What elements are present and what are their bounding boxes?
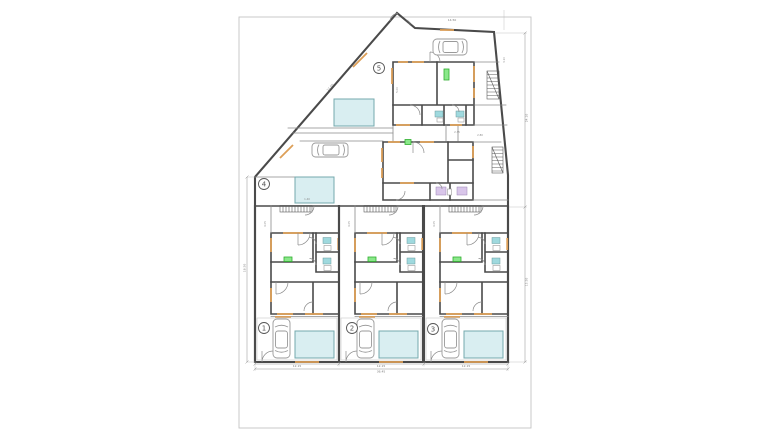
pool-unit5	[334, 99, 374, 126]
dim-extra: 5.00	[395, 87, 399, 93]
dim-unit1-width: 12.15	[293, 364, 302, 368]
green-door-marker	[444, 69, 449, 80]
dim-right-lower: 15.50	[525, 278, 529, 287]
floor-plan-drawing: 1 2 3 4 5 12.15 12.15 12.15 36.45 24.10 …	[0, 0, 770, 433]
unit-5-label: 5	[377, 65, 381, 73]
dim-extra: 4.05	[347, 221, 351, 227]
unit-2-label: 2	[350, 325, 354, 333]
dim-extra: 4.05	[432, 221, 436, 227]
unit-5-badge: 5	[374, 63, 385, 74]
dim-extra: 1.40	[304, 197, 310, 201]
unit-4-plan	[255, 125, 508, 203]
dim-extra: 3.10	[502, 57, 506, 63]
unit-2-badge: 2	[347, 323, 358, 334]
car-unit5	[433, 39, 467, 55]
dim-extra: 2.35	[454, 130, 460, 134]
unit-4-badge: 4	[259, 179, 270, 190]
unit-1-badge: 1	[259, 323, 270, 334]
unit-4-label: 4	[262, 181, 267, 189]
dim-total-width: 36.45	[377, 370, 386, 374]
dim-right-upper: 24.10	[525, 114, 529, 123]
unit-3-plan	[424, 206, 508, 363]
stairs-unit4	[492, 147, 503, 173]
unit-3-label: 3	[431, 326, 435, 334]
unit-1-label: 1	[262, 325, 266, 333]
unit-1-plan	[255, 206, 339, 363]
dim-left-height: 18.50	[242, 264, 246, 273]
unit-3-badge: 3	[428, 324, 439, 335]
dim-top-edge: 14.50	[448, 18, 457, 22]
unit-2-plan	[339, 206, 423, 363]
pool-unit4	[295, 177, 334, 203]
green-door-marker	[405, 140, 411, 145]
dim-unit2-width: 12.15	[377, 364, 386, 368]
car-unit4	[312, 143, 348, 157]
floor-plan-page: 1 2 3 4 5 12.15 12.15 12.15 36.45 24.10 …	[0, 0, 770, 433]
dim-unit3-width: 12.15	[462, 364, 471, 368]
dim-extra: 2.80	[477, 133, 483, 137]
dim-extra: 4.05	[263, 221, 267, 227]
